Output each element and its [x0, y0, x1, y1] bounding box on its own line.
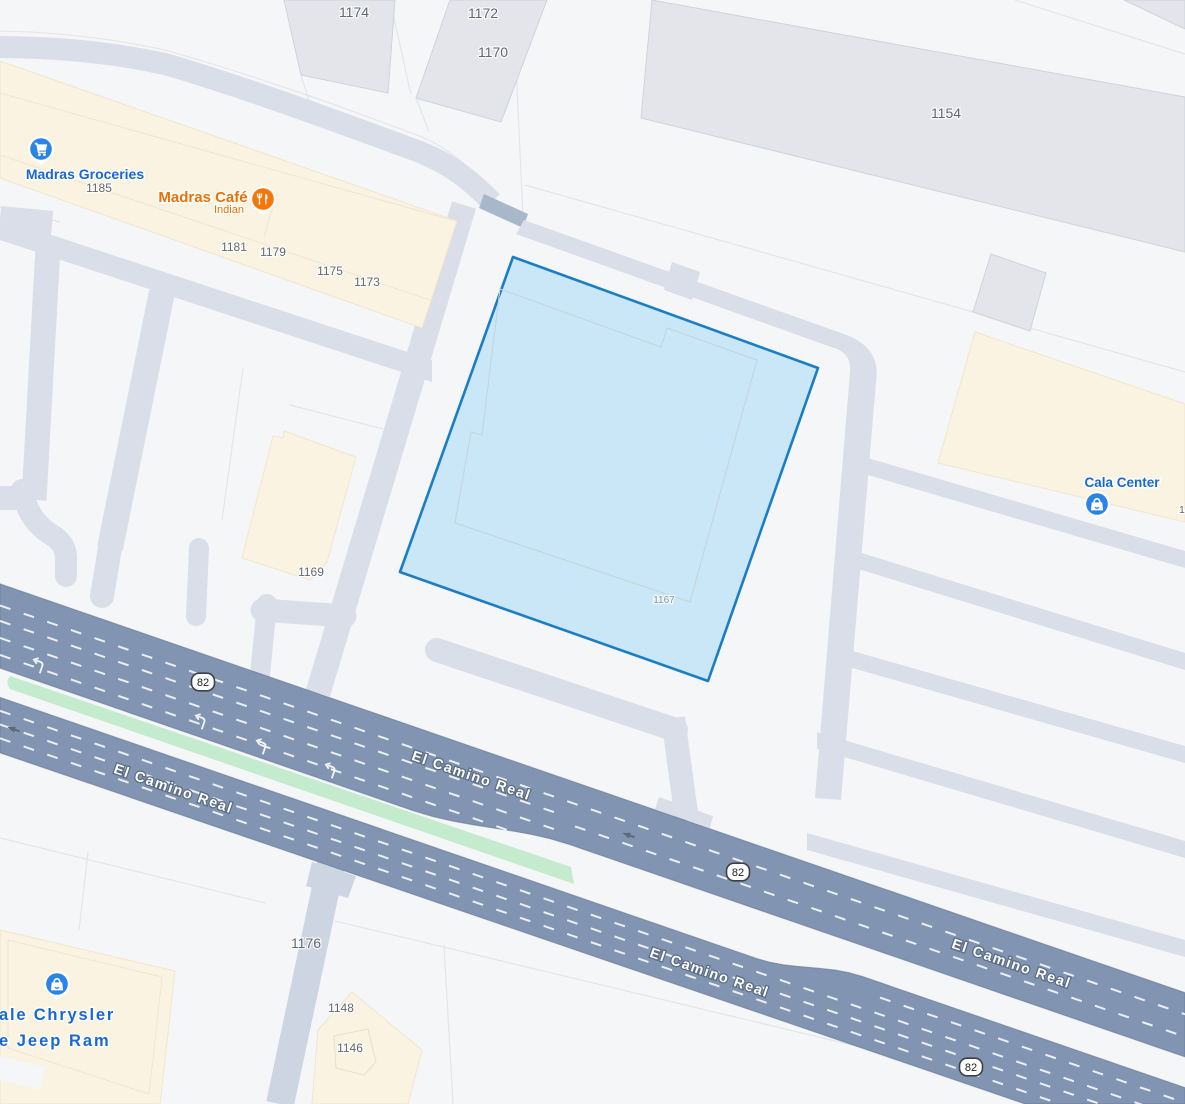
svg-text:1167: 1167	[653, 595, 675, 606]
svg-text:1175: 1175	[317, 264, 343, 278]
svg-text:1181: 1181	[221, 240, 247, 254]
svg-text:Cala Center: Cala Center	[1084, 475, 1160, 490]
svg-text:14: 14	[1179, 504, 1185, 516]
svg-text:82: 82	[197, 677, 209, 689]
svg-text:1185: 1185	[86, 181, 112, 195]
svg-text:82: 82	[965, 1062, 977, 1074]
svg-text:Indian: Indian	[214, 204, 244, 216]
svg-text:1176: 1176	[291, 935, 321, 951]
svg-text:Madras Groceries: Madras Groceries	[26, 166, 144, 182]
svg-text:1172: 1172	[468, 5, 498, 21]
svg-text:1169: 1169	[298, 565, 324, 579]
svg-text:1148: 1148	[328, 1001, 354, 1015]
svg-text:1174: 1174	[339, 4, 369, 20]
svg-text:1179: 1179	[260, 245, 286, 259]
svg-text:1146: 1146	[337, 1041, 363, 1055]
svg-text:1170: 1170	[478, 44, 508, 60]
svg-text:ale Chrysler: ale Chrysler	[0, 1006, 115, 1024]
svg-text:1173: 1173	[354, 275, 380, 289]
svg-text:82: 82	[732, 867, 744, 879]
svg-text:1154: 1154	[931, 105, 961, 121]
svg-text:e Jeep Ram: e Jeep Ram	[0, 1032, 111, 1050]
